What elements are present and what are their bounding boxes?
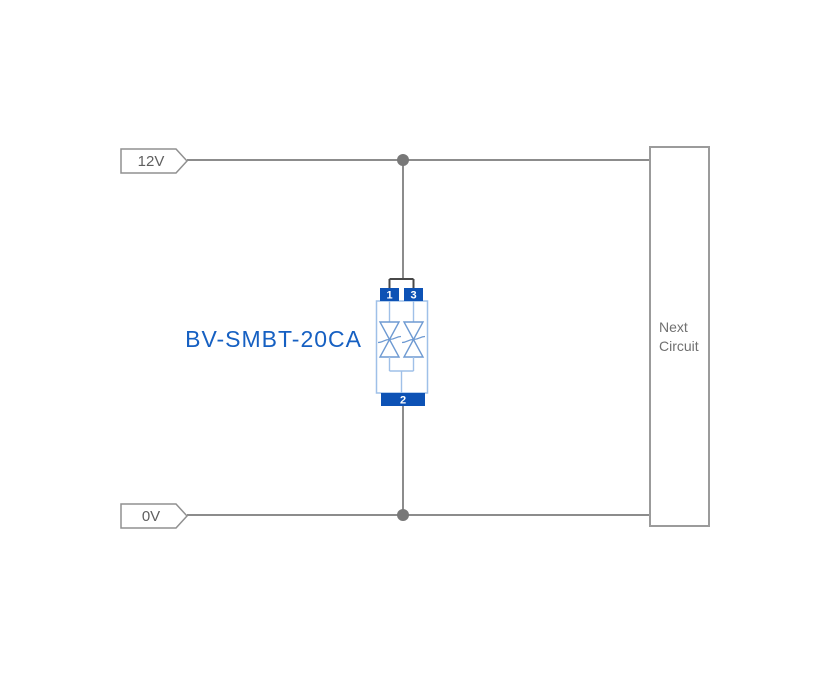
net-tag-0v: 0V (120, 503, 188, 529)
next-circuit-box: Next Circuit (649, 146, 710, 527)
pin-1: 1 (380, 288, 399, 302)
net-tag-12v-label: 12V (138, 153, 165, 170)
wire-top-rail (187, 159, 649, 161)
wire-bottom-rail (187, 514, 649, 516)
pin-1-label: 1 (386, 290, 392, 302)
top-fork-lead (390, 279, 414, 289)
pin-3: 3 (404, 288, 423, 302)
circuit-diagram: 12V 0V 1 (0, 0, 832, 675)
junction-dot-top (397, 154, 409, 166)
wire-vertical-upper (402, 160, 404, 278)
pin-2-label: 2 (400, 395, 406, 407)
next-circuit-line2: Circuit (659, 337, 708, 356)
wire-vertical-lower (402, 406, 404, 515)
pin-2: 2 (381, 393, 425, 407)
junction-dot-bottom (397, 509, 409, 521)
net-tag-0v-label: 0V (142, 508, 160, 525)
tvs-component: 1 3 2 (370, 270, 440, 410)
next-circuit-line1: Next (659, 318, 708, 337)
pin-3-label: 3 (410, 290, 416, 302)
component-part-number: BV-SMBT-20CA (150, 326, 362, 353)
net-tag-12v: 12V (120, 148, 188, 174)
